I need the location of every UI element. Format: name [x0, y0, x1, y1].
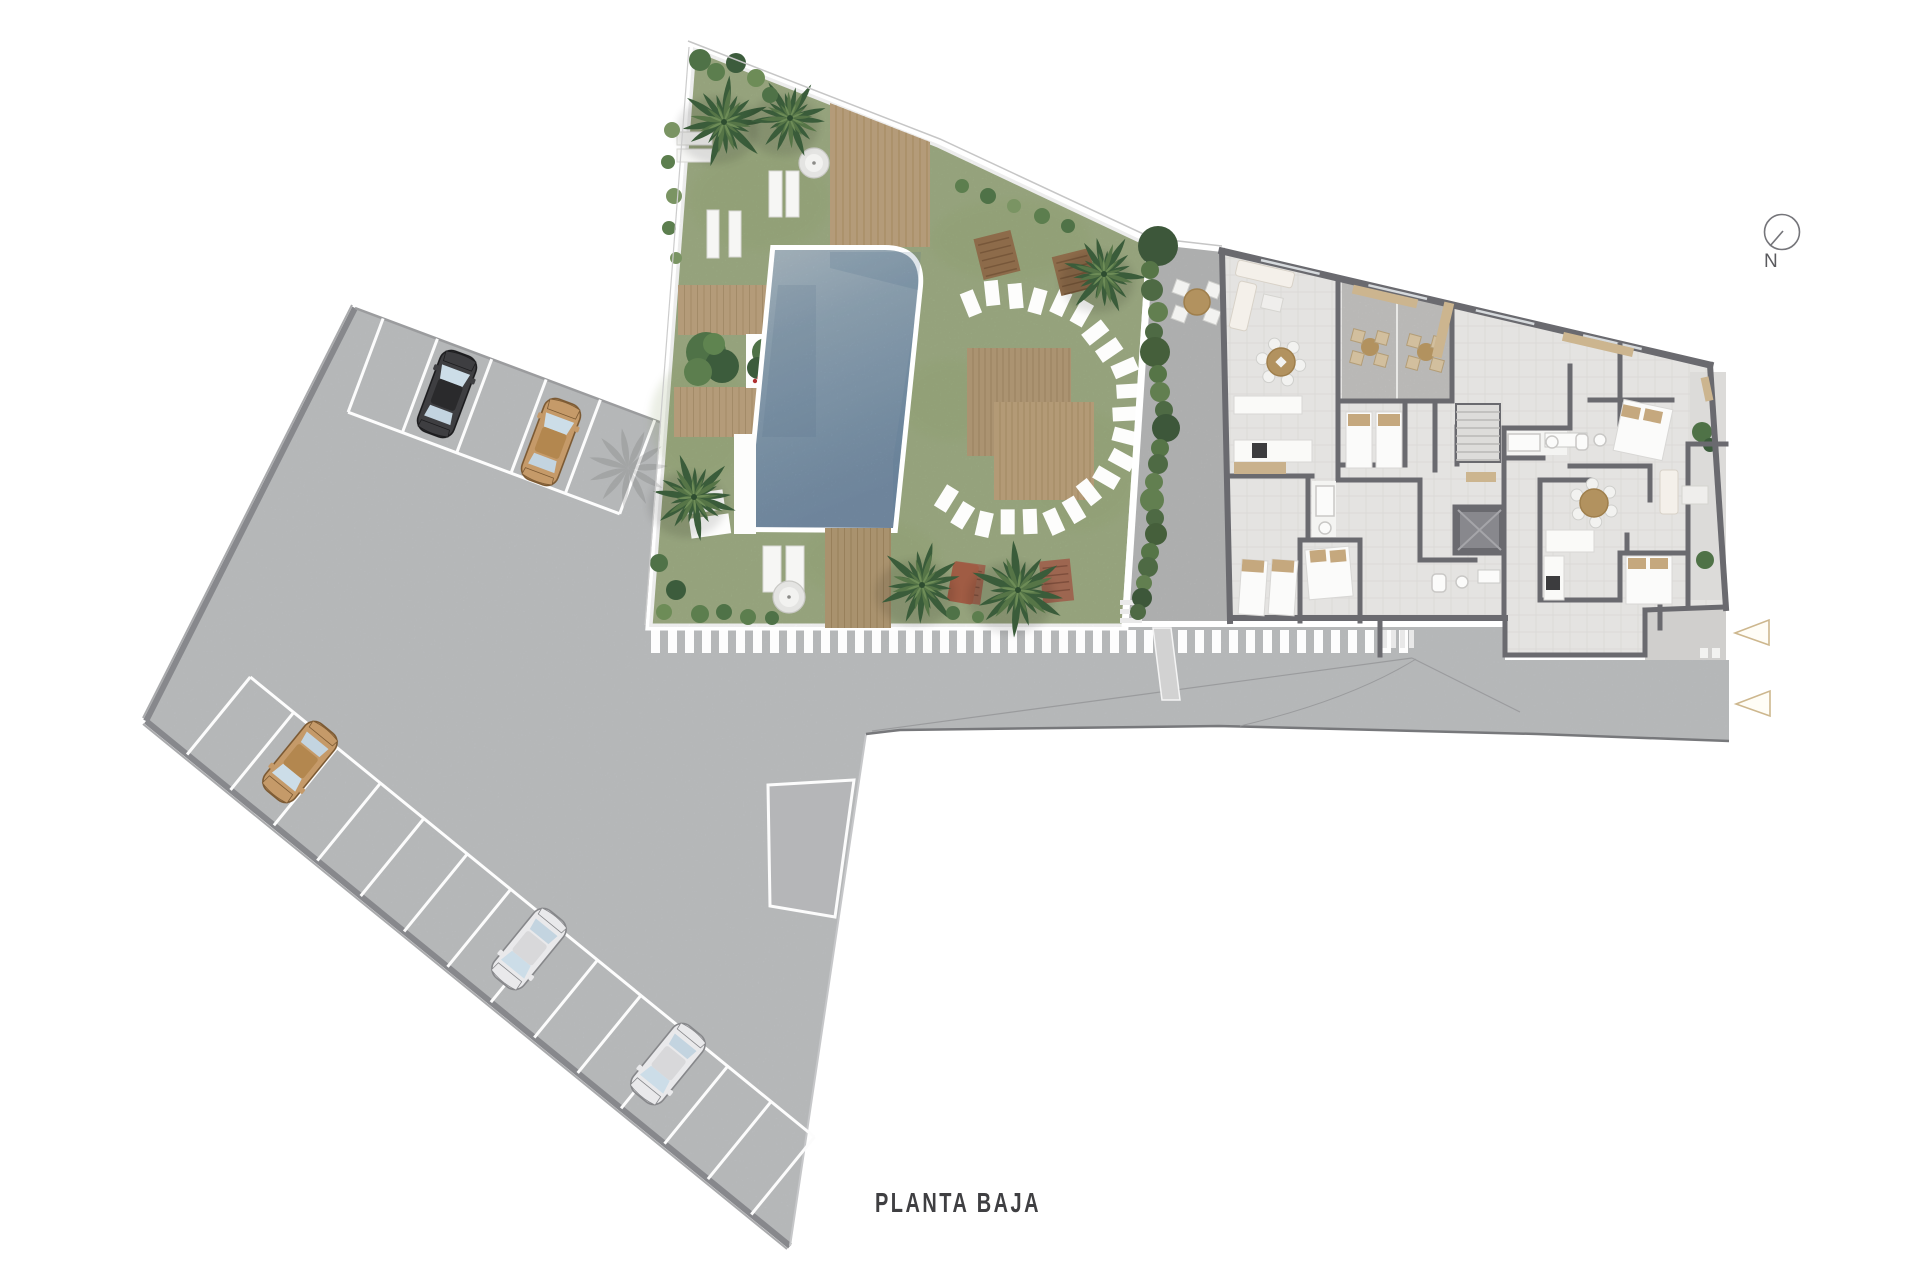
svg-text:PLANTA BAJA: PLANTA BAJA [875, 1187, 1041, 1218]
svg-text:N: N [1764, 251, 1778, 272]
